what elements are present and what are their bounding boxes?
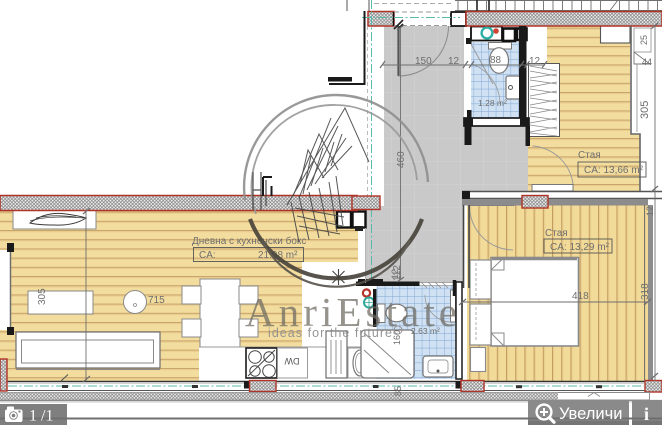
- svg-text:12: 12: [529, 56, 541, 67]
- svg-text:Дневна с кухненски бокс: Дневна с кухненски бокс: [192, 235, 306, 247]
- svg-text:305: 305: [639, 101, 651, 119]
- svg-text:12: 12: [645, 206, 655, 216]
- svg-text:i: i: [644, 404, 649, 424]
- svg-text:318: 318: [640, 283, 651, 300]
- svg-text:CA: 13,66 m²: CA: 13,66 m²: [584, 165, 644, 176]
- svg-text:12: 12: [390, 269, 400, 279]
- svg-text:Увеличи: Увеличи: [559, 405, 622, 423]
- svg-text:460: 460: [396, 151, 407, 168]
- svg-text:25: 25: [639, 35, 649, 45]
- svg-text:1.28 m²: 1.28 m²: [478, 98, 507, 108]
- svg-text:1 /1: 1 /1: [29, 408, 53, 425]
- svg-text:150: 150: [415, 56, 432, 67]
- svg-text:CA: 13,29 m²: CA: 13,29 m²: [550, 242, 610, 253]
- svg-text:305: 305: [37, 288, 48, 305]
- svg-text:418: 418: [572, 291, 589, 302]
- svg-text:85: 85: [393, 386, 403, 396]
- svg-text:715: 715: [148, 295, 165, 306]
- svg-text:CA:: CA:: [199, 250, 216, 261]
- svg-text:12: 12: [448, 56, 460, 67]
- svg-text:ideas for the future: ideas for the future: [268, 326, 392, 340]
- svg-text:Стая: Стая: [545, 228, 568, 239]
- svg-text:88: 88: [490, 55, 502, 66]
- svg-text:DW: DW: [284, 356, 299, 366]
- svg-text:Стая: Стая: [578, 150, 601, 161]
- svg-text:44: 44: [642, 57, 652, 67]
